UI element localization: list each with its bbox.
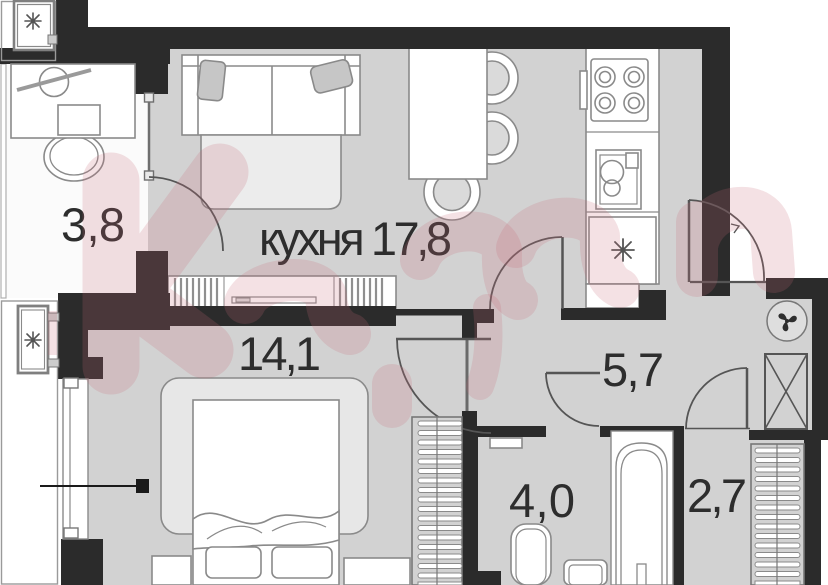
svg-text:5,7: 5,7 — [602, 343, 664, 396]
svg-text:4,0: 4,0 — [509, 474, 575, 527]
svg-text:14,1: 14,1 — [238, 327, 321, 380]
svg-text:2,7: 2,7 — [687, 469, 747, 522]
